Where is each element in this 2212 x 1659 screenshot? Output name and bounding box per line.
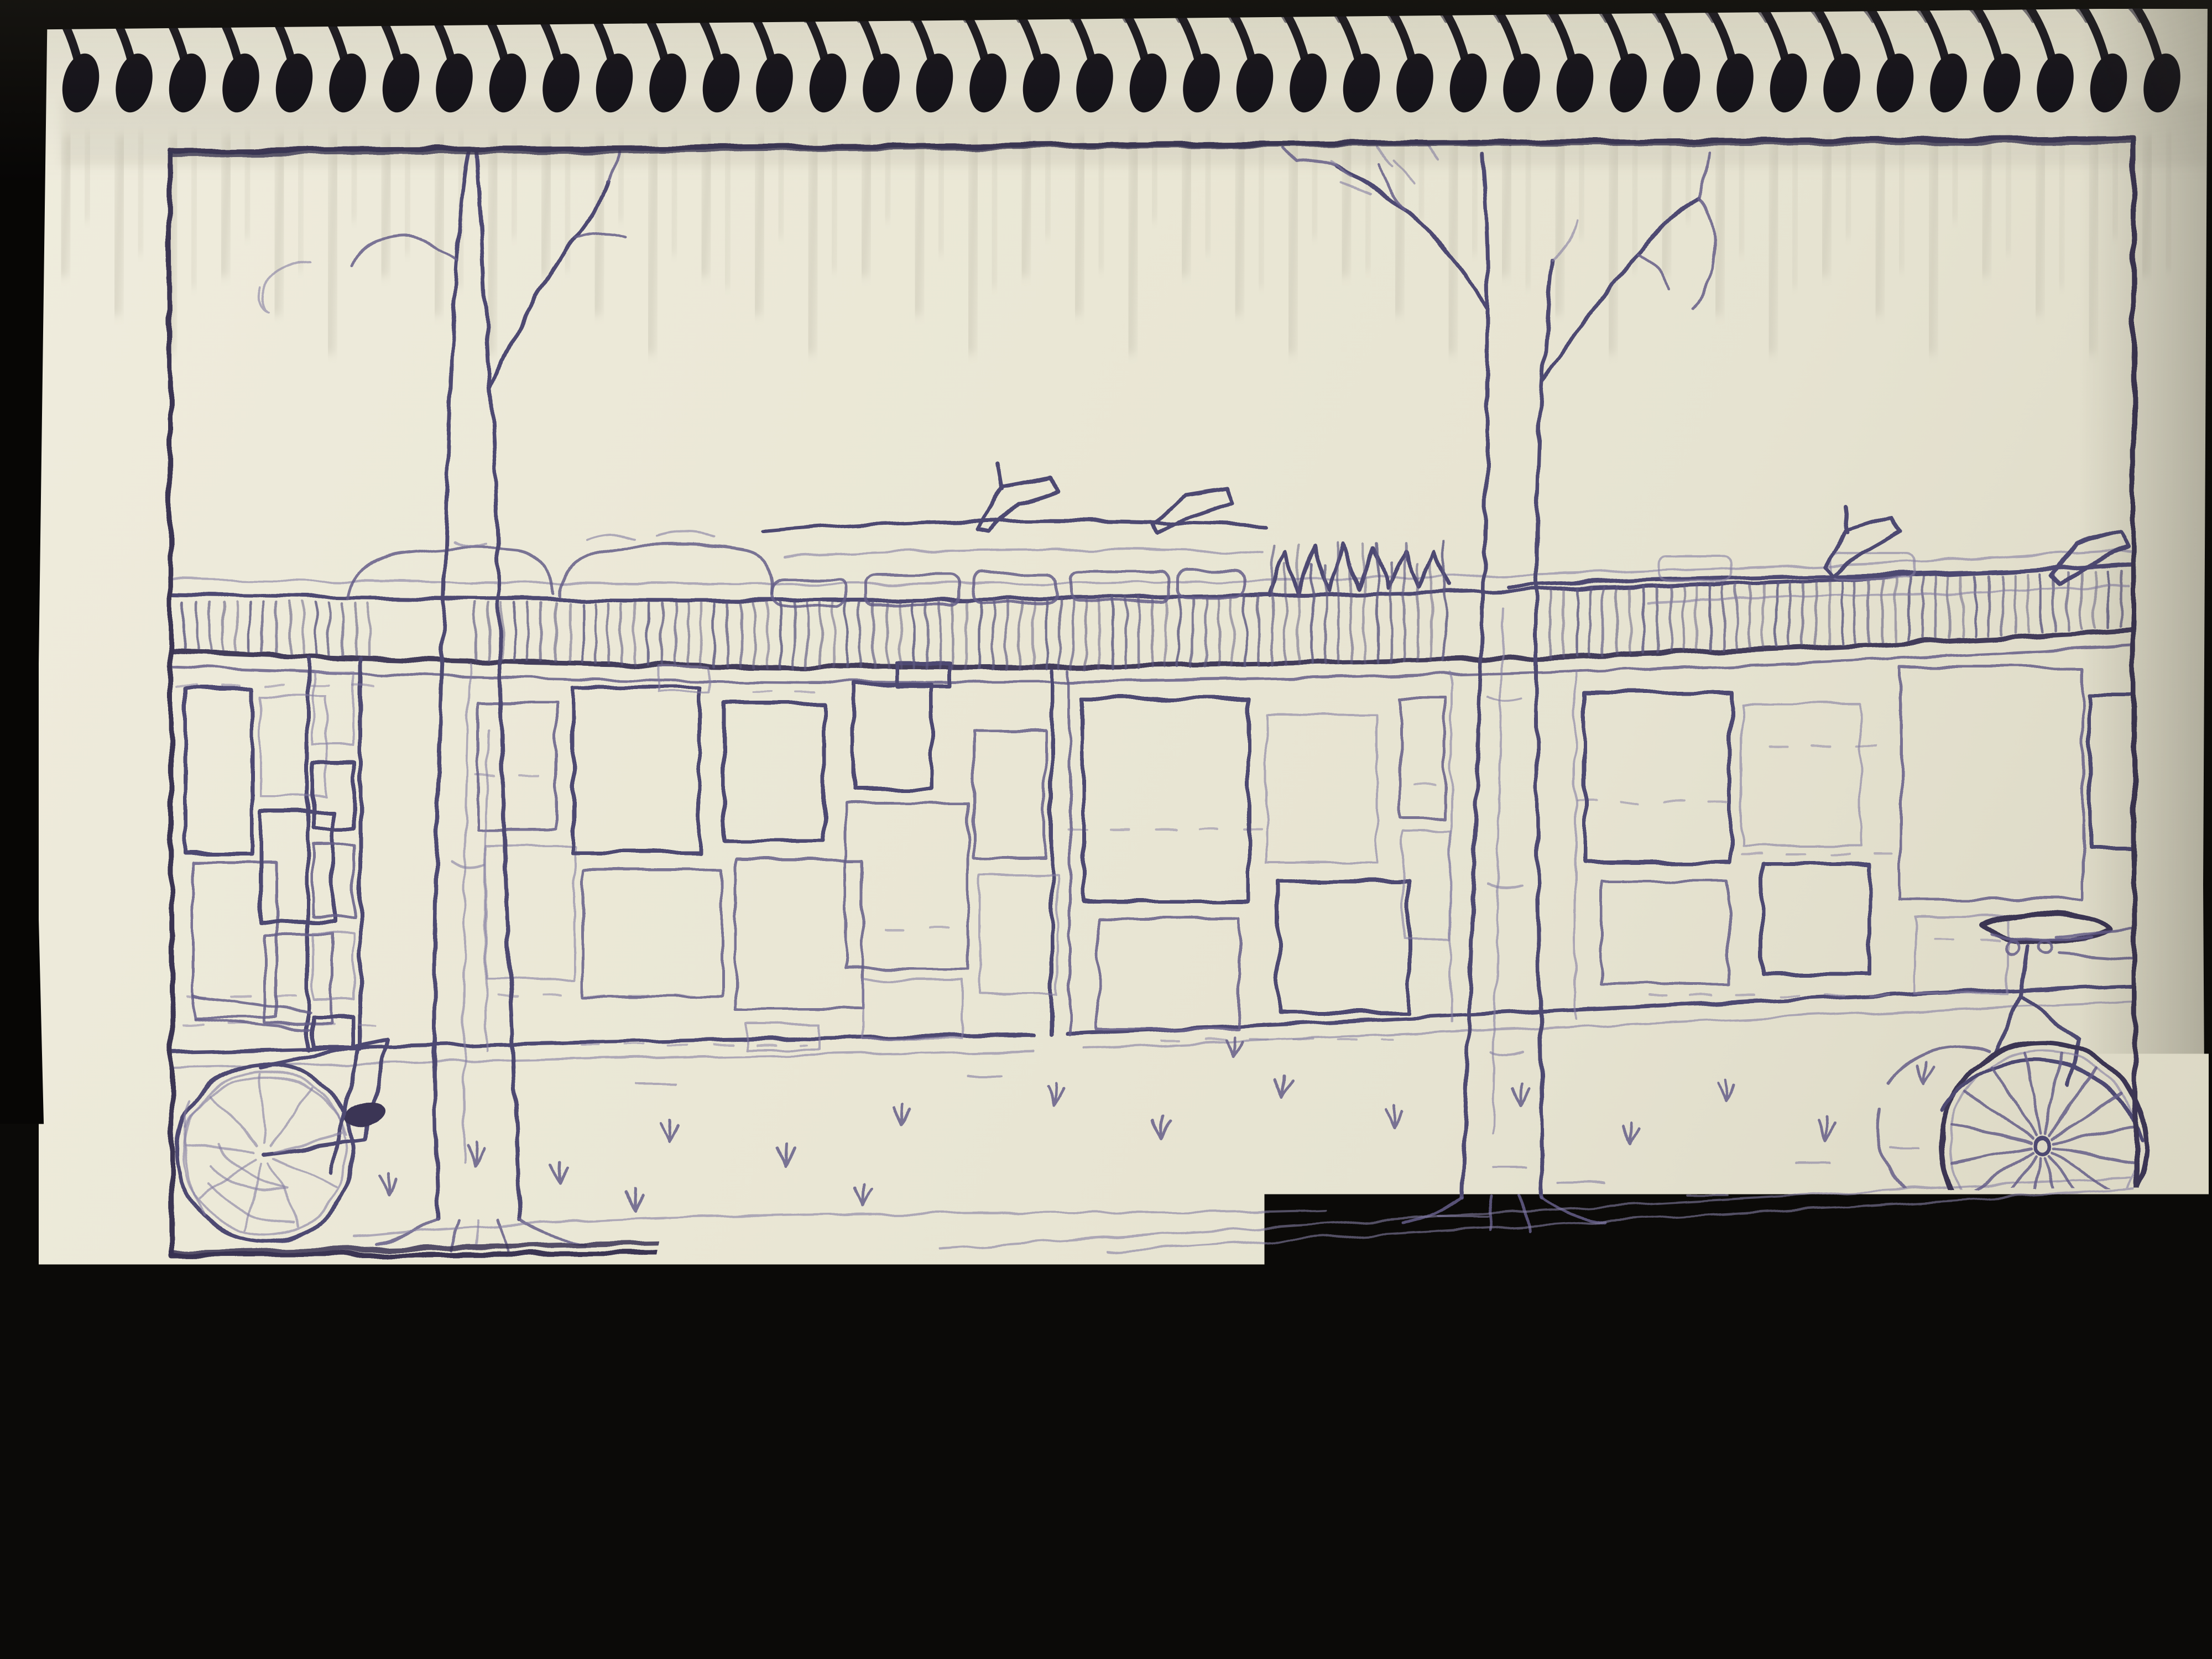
coil-shadow bbox=[489, 135, 497, 354]
poster bbox=[863, 980, 962, 1039]
page-artwork: 1978 11 “西单民主墙”是我记忆中最深刻的墙。那时五年级十二岁的我并不知“… bbox=[0, 0, 2212, 1659]
grass-tuft bbox=[468, 1142, 484, 1164]
coil-shadow bbox=[1449, 135, 1457, 354]
poster bbox=[487, 846, 575, 979]
grass-tuft bbox=[661, 1120, 678, 1142]
grass-tuft bbox=[855, 1183, 872, 1206]
poster bbox=[1601, 880, 1729, 984]
caption-line-2: 体会了什么是“自由”。当那堵被众多大字报、小字报贴满的墙被在一夜之间清洗得干干净… bbox=[442, 1361, 1969, 1416]
binding-coil bbox=[2065, 0, 2132, 116]
poster bbox=[313, 1016, 354, 1047]
grass-tuft bbox=[1154, 1117, 1170, 1139]
binding-coil bbox=[1479, 0, 1546, 116]
poster bbox=[973, 731, 1045, 858]
grass-tuft bbox=[1275, 1076, 1292, 1098]
poster bbox=[1400, 698, 1444, 818]
poster bbox=[260, 697, 326, 796]
coil-shadow bbox=[649, 135, 657, 354]
coil-shadow bbox=[1930, 135, 1938, 354]
poster bbox=[1584, 692, 1731, 863]
poster bbox=[854, 684, 932, 789]
binding-coil bbox=[1852, 0, 1919, 116]
coil-shadow bbox=[809, 135, 817, 354]
poster bbox=[1900, 667, 2083, 899]
coil-wire bbox=[2022, 0, 2054, 65]
binding-coil bbox=[1639, 0, 1705, 116]
binding-coil bbox=[1906, 0, 1973, 116]
poster bbox=[572, 687, 700, 853]
poster bbox=[185, 688, 252, 854]
bicycle-left bbox=[177, 995, 388, 1241]
photo-of-sketchbook: 1978 11 “西单民主墙”是我记忆中最深刻的墙。那时五年级十二岁的我并不知“… bbox=[0, 0, 2212, 1659]
coil-shadow bbox=[2090, 135, 2098, 354]
binding-coil bbox=[1799, 0, 1866, 116]
poster bbox=[1404, 831, 1451, 940]
month-label: 11 bbox=[220, 1316, 458, 1543]
pencil-sketch bbox=[169, 138, 2146, 1255]
grass-tuft bbox=[894, 1103, 910, 1125]
poster bbox=[1914, 916, 2008, 993]
poster bbox=[846, 803, 968, 969]
grass-tuft bbox=[1046, 1084, 1062, 1106]
binding-coil bbox=[1692, 0, 1759, 116]
binding-coil bbox=[1532, 0, 1599, 116]
poster bbox=[1098, 919, 1239, 1029]
poster bbox=[1083, 698, 1249, 901]
poster bbox=[313, 933, 354, 1000]
grass-tuft bbox=[1624, 1123, 1640, 1145]
grass-tuft bbox=[1817, 1117, 1834, 1139]
poster bbox=[735, 860, 863, 1009]
grass-tuft bbox=[379, 1172, 396, 1194]
poster bbox=[313, 672, 354, 744]
ground-and-grass bbox=[354, 1037, 2132, 1251]
binding-coil bbox=[2119, 0, 2186, 116]
grass-tuft bbox=[551, 1161, 567, 1183]
binding-coil bbox=[1372, 0, 1439, 116]
binding-coil bbox=[1585, 0, 1652, 116]
caption-line-3: 候，我开始知道“自由”是不易的，但那“自由”却牢牢地印在了我年幼的心里，清洗不去… bbox=[442, 1445, 1936, 1500]
coil-shadow bbox=[1610, 135, 1618, 354]
right-tree bbox=[1282, 144, 1714, 1230]
grass-tuft bbox=[1513, 1084, 1530, 1106]
poster bbox=[478, 702, 556, 830]
coil-wire bbox=[2075, 0, 2107, 65]
binding-coil bbox=[1425, 0, 1492, 116]
coil-shadow bbox=[969, 135, 977, 354]
binding-coil bbox=[1265, 0, 1332, 116]
poster bbox=[1266, 714, 1377, 863]
grass-tuft bbox=[1386, 1106, 1402, 1128]
caption-line-1: “西单民主墙”是我记忆中最深刻的墙。那时五年级十二岁的我并不知“民主”的深意，但… bbox=[442, 1277, 2124, 1332]
poster bbox=[724, 703, 824, 842]
grass-tuft bbox=[1718, 1078, 1734, 1100]
coil-shadow bbox=[329, 135, 337, 354]
grass-tuft bbox=[1917, 1062, 1933, 1084]
binding-coil bbox=[1959, 0, 2026, 116]
binding-coil bbox=[2012, 0, 2079, 116]
grass-tuft bbox=[1225, 1037, 1242, 1059]
poster bbox=[1742, 703, 1861, 846]
poster bbox=[1762, 864, 1870, 974]
binding-coil bbox=[1745, 0, 1812, 116]
caption-block: 1978 11 “西单民主墙”是我记忆中最深刻的墙。那时五年级十二岁的我并不知“… bbox=[195, 1245, 2124, 1543]
coil-shadow bbox=[1770, 135, 1777, 354]
coil-shadow bbox=[1290, 135, 1297, 354]
coil-wire bbox=[2129, 0, 2161, 65]
binding-coil bbox=[1318, 0, 1385, 116]
poster bbox=[583, 869, 722, 997]
poster bbox=[1279, 880, 1408, 1012]
wall-posters bbox=[185, 664, 2133, 1050]
grass-tuft bbox=[628, 1189, 645, 1211]
coil-shadow bbox=[1129, 135, 1137, 354]
grass-tuft bbox=[778, 1145, 794, 1167]
poster bbox=[2089, 695, 2133, 848]
poster bbox=[980, 875, 1057, 994]
